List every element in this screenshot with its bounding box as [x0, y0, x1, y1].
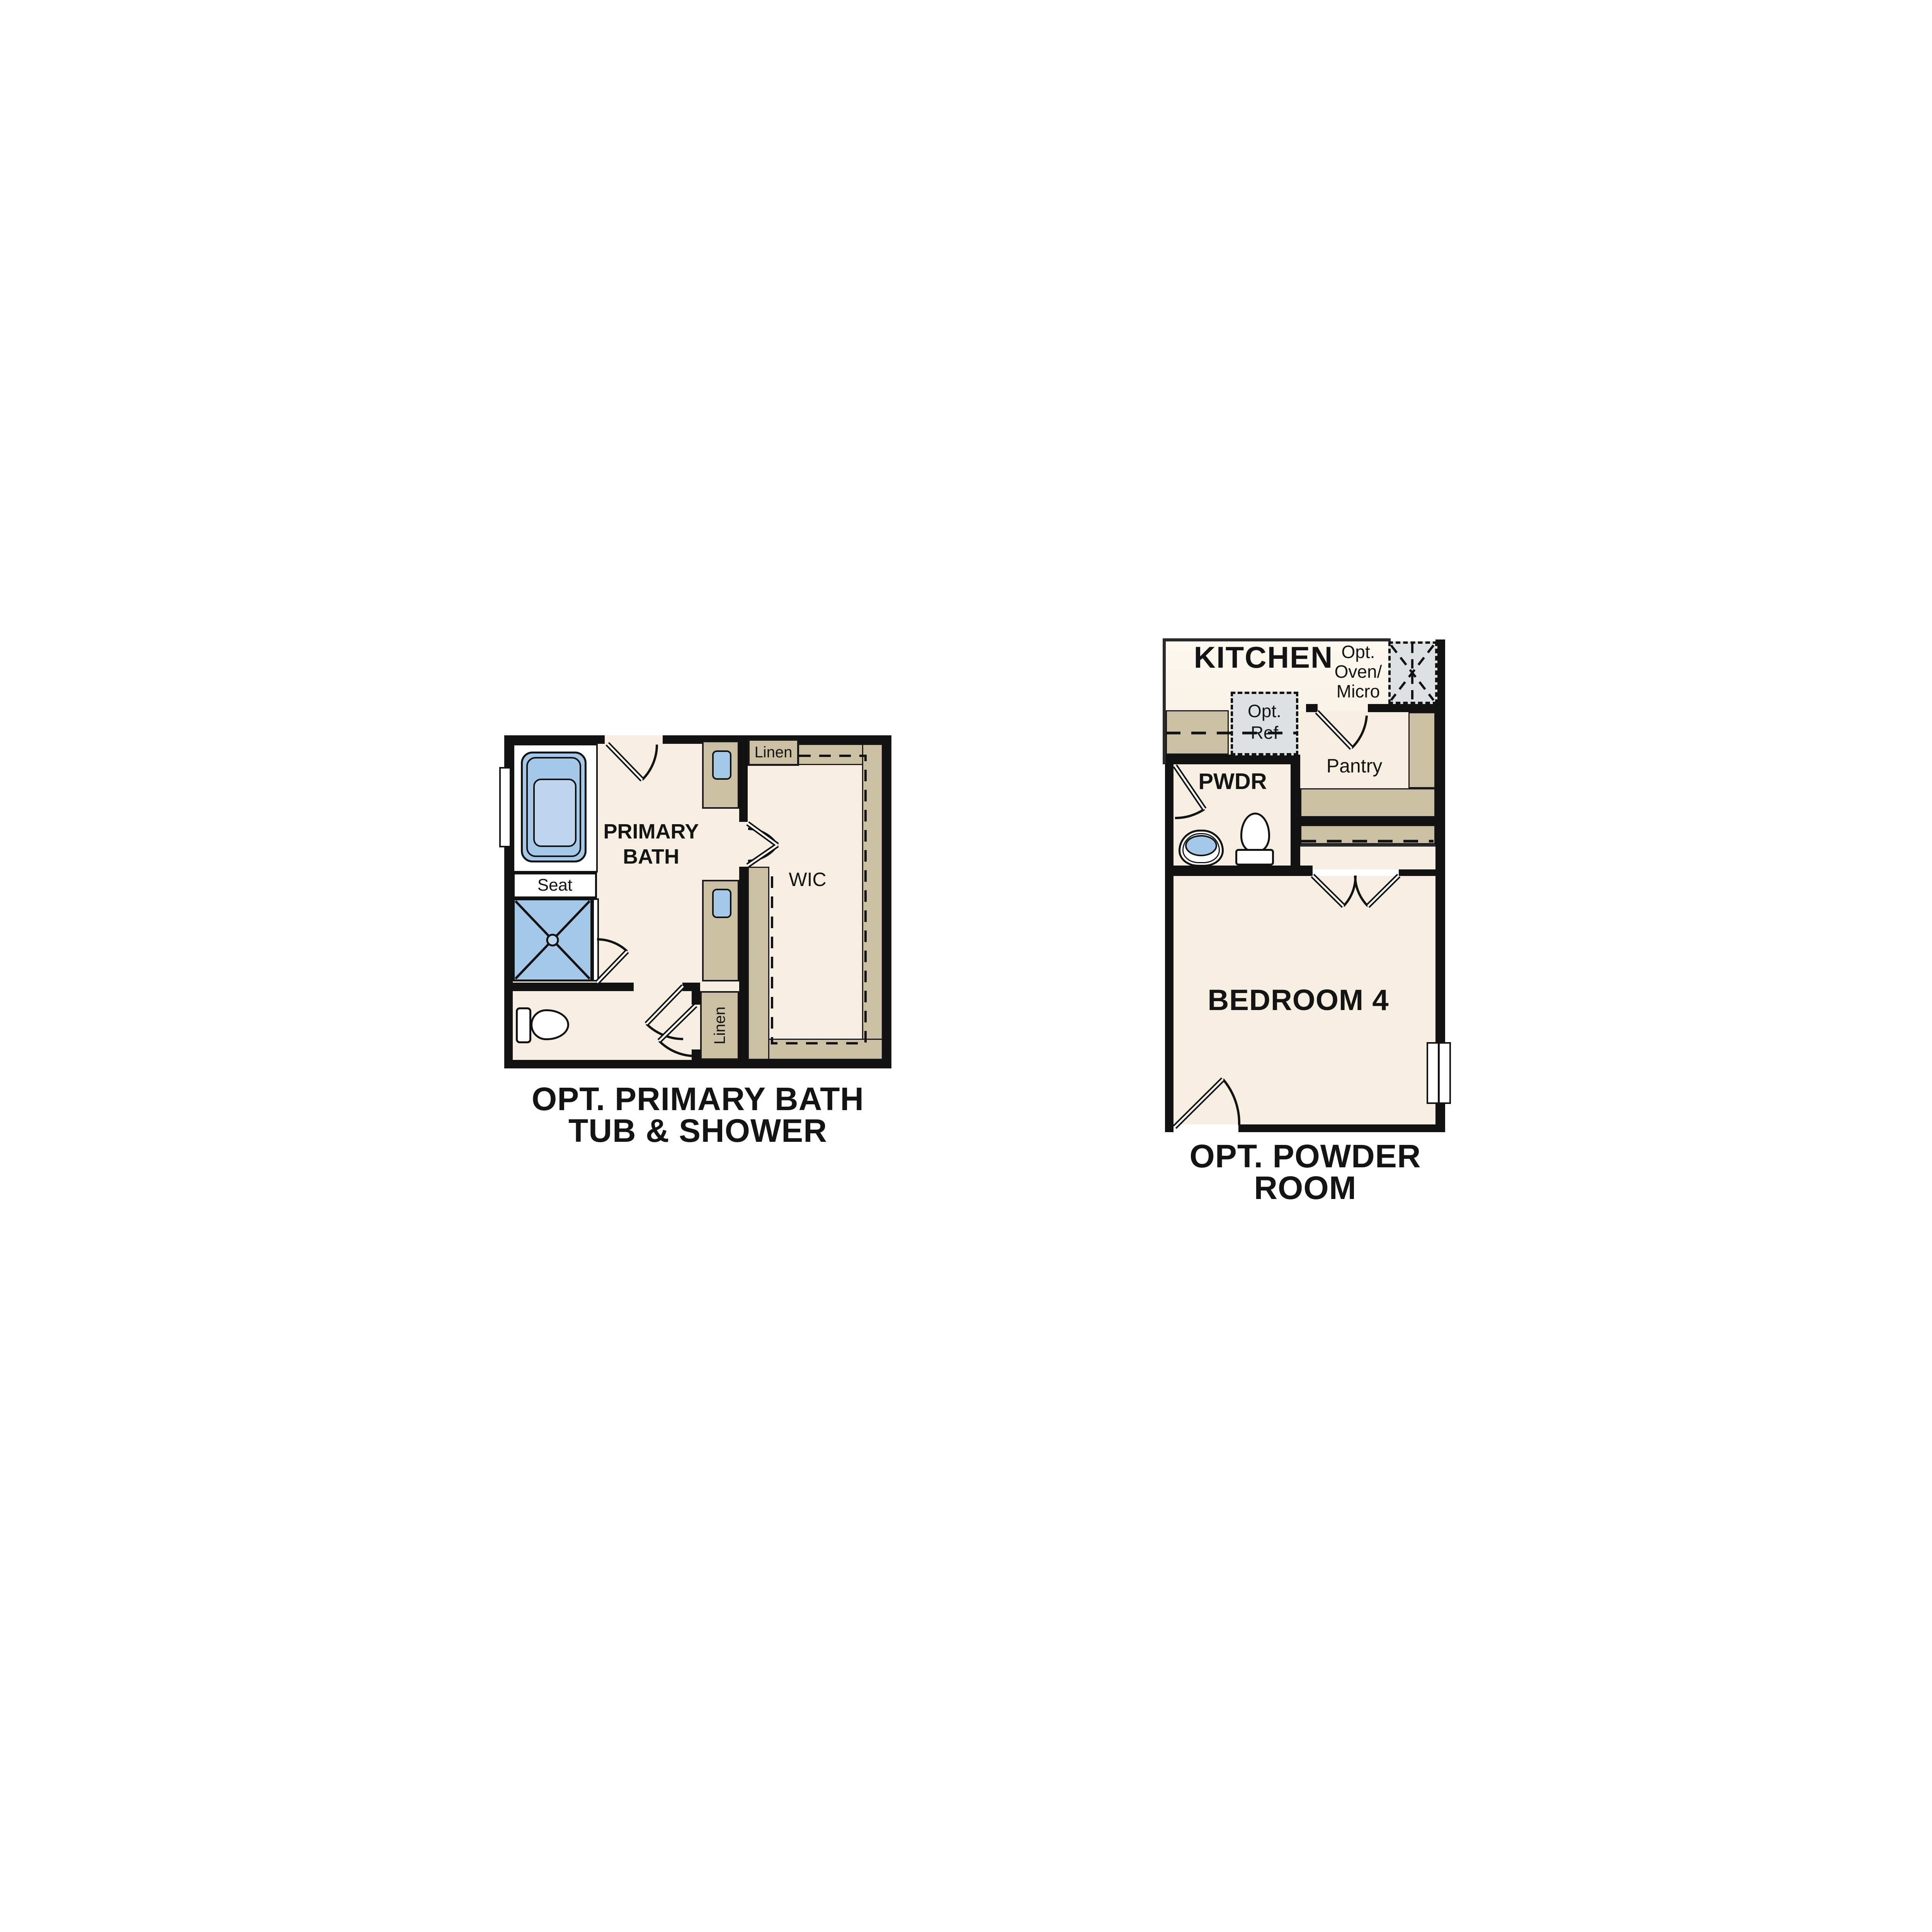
wic-rod-dashed [772, 756, 866, 1043]
door-leaf-cores [597, 712, 1399, 1127]
door-leaves [597, 712, 1399, 1127]
oven-micro-x-icon [1391, 644, 1434, 702]
door-arcs [597, 716, 1368, 1125]
floorplan-page: { "colors": { "wall": "#121212", "floor_… [0, 0, 1932, 1932]
floorplan-linework [0, 0, 1932, 1932]
shower-drain [547, 935, 558, 946]
